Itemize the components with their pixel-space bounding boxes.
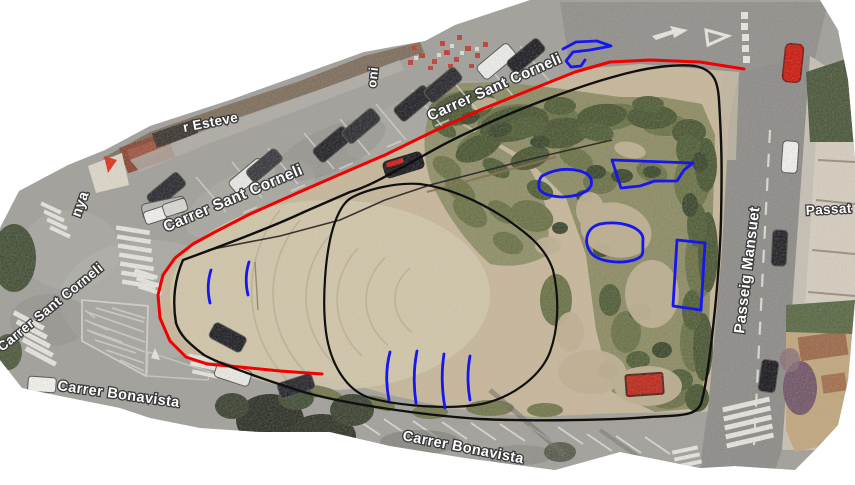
svg-text:oni: oni <box>364 66 381 88</box>
svg-text:Passat: Passat <box>805 201 852 218</box>
